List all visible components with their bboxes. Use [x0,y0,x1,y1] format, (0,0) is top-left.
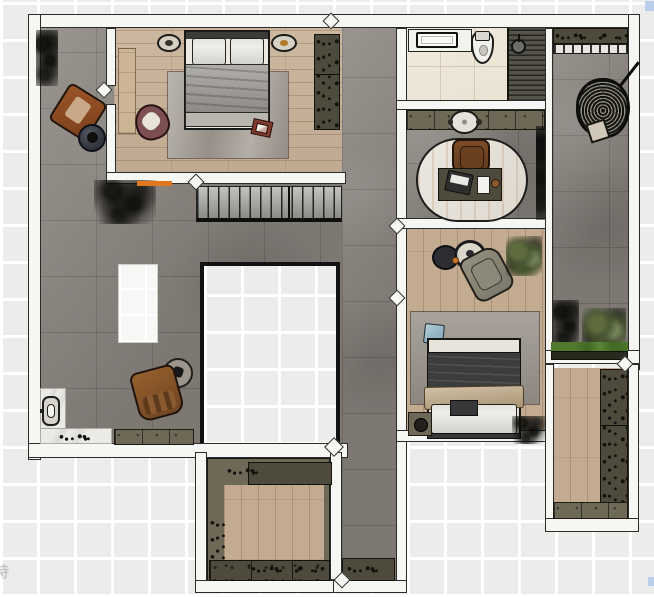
balcony-hedge-planter[interactable] [551,342,628,360]
hall-basin[interactable] [450,110,479,134]
wardrobe-room-scatter-top [226,464,268,482]
shower-floor [507,28,545,106]
wardrobe-room-scatter-bottom [250,562,326,578]
wardrobe-room-scatter-left [209,516,227,560]
hanging-egg-chair[interactable] [576,78,630,138]
selection-handle-bottom-right [648,577,654,586]
bedroom2-runner [450,400,478,416]
floorplan-canvas: 特 [0,0,654,597]
wardrobe-room-wood-center [224,485,324,560]
master-duvet [185,64,269,114]
study-notebook [477,176,490,194]
closet-room-bottom-wall [545,518,639,532]
wardrobe-room-bottom-wall [195,580,342,593]
corridor-cabinet-decor [346,562,390,576]
void-room [200,262,340,445]
terrace-side-table-upper[interactable] [78,124,106,152]
master-pillow-right [230,38,264,65]
study-cup [491,179,500,188]
staircase[interactable] [196,186,342,222]
master-left-wall-upper [106,28,116,86]
island-void [118,264,158,343]
terrace-bottom-wall [28,443,348,458]
watermark-text: 特 [0,561,10,582]
terrace-plant-mid[interactable] [94,180,156,224]
bedroom2-plant-dark[interactable] [512,416,546,444]
bedroom2-plant-green[interactable] [506,236,542,276]
master-pillow-left [192,38,226,65]
master-left-wall-lower [106,104,116,174]
hall-corridor-floor [342,28,398,582]
master-bench[interactable] [118,48,136,134]
bedroom2-headboard-base [427,433,521,439]
shower-head[interactable] [511,39,526,54]
master-nightstand-left[interactable] [157,34,181,52]
terrace-door-mat [137,181,172,186]
wardrobe-room-left-wall [195,452,207,592]
balcony-plant-dark[interactable] [553,300,579,348]
bedroom2-duvet-dark [427,352,521,390]
closet-cabinet-column[interactable] [600,369,628,503]
bathroom-bottom-wall [396,100,553,110]
master-nightstand-right[interactable] [271,34,297,52]
balcony-shelf-white[interactable] [553,44,628,54]
bedroom2-orange-decor [452,257,459,264]
floorplan-scene [0,0,654,597]
bathroom-sink[interactable] [416,32,458,48]
master-wardrobe[interactable] [314,34,340,130]
balcony-shelf-top[interactable] [553,28,628,44]
terrace-cabinet[interactable] [114,429,194,445]
selection-handle-top-right [645,1,654,11]
wall-plant-strip [536,126,545,220]
closet-cabinet-row[interactable] [553,502,628,519]
entry-scatter-decor [58,430,94,445]
bedroom2-nightstand[interactable] [408,412,432,436]
closet-room-right-wall [628,364,639,532]
terrace-plant-top[interactable] [36,30,58,86]
entry-fixture[interactable] [42,396,60,426]
